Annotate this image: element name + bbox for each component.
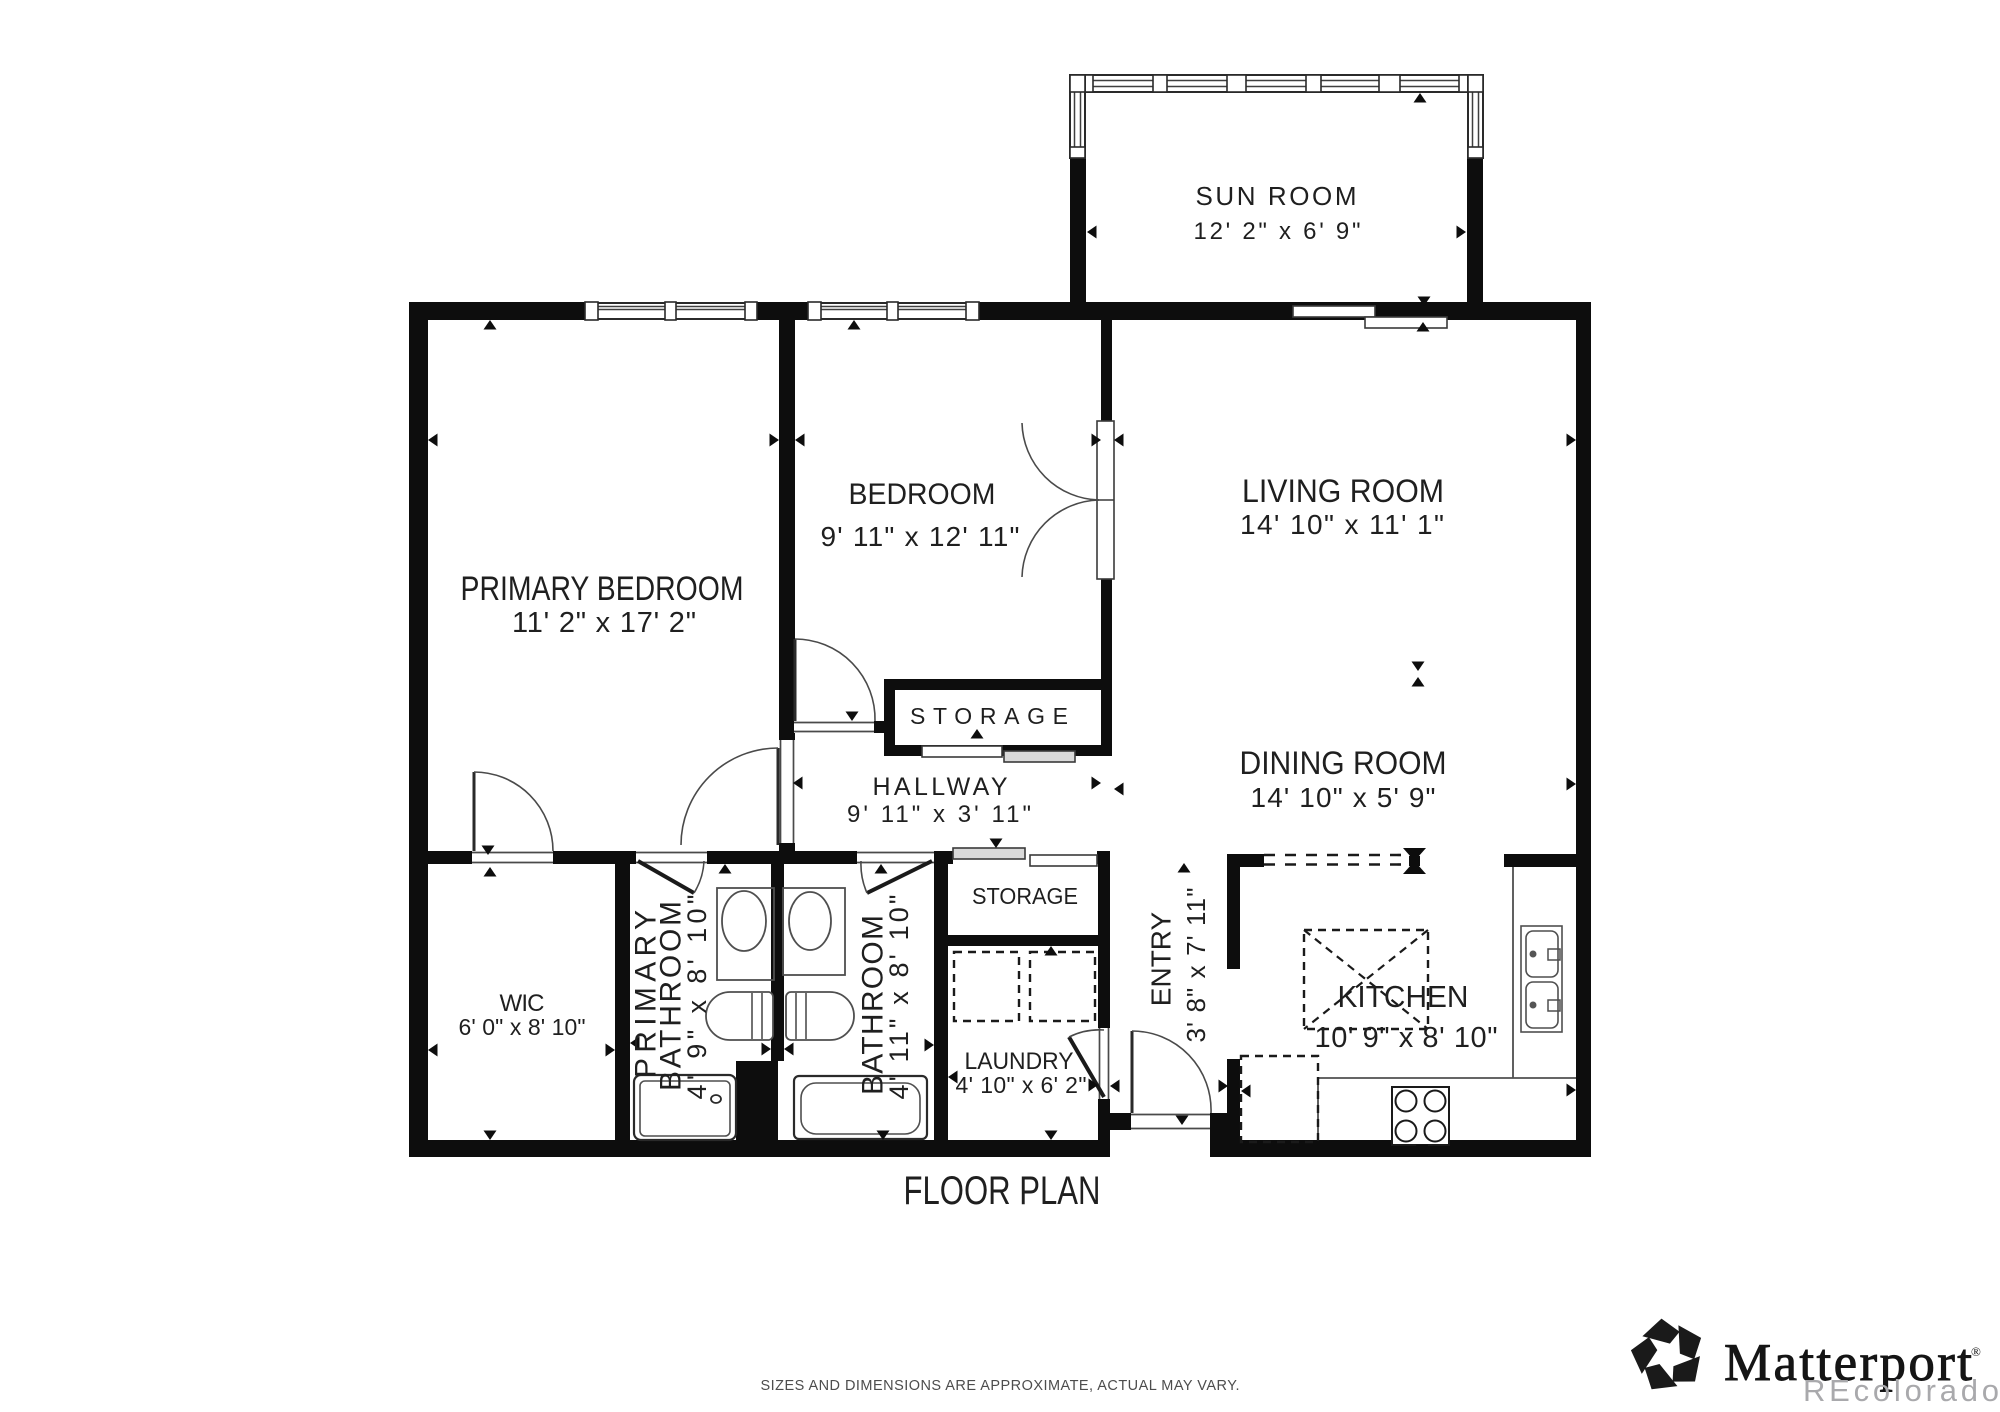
svg-text:3' 8" x 7' 11": 3' 8" x 7' 11" xyxy=(1181,888,1211,1043)
svg-text:14' 10" x 11' 1": 14' 10" x 11' 1" xyxy=(1240,509,1444,540)
svg-text:4' 10" x 6' 2": 4' 10" x 6' 2" xyxy=(956,1072,1087,1098)
svg-text:FLOOR PLAN: FLOOR PLAN xyxy=(904,1169,1101,1213)
svg-text:SIZES AND DIMENSIONS ARE APPRO: SIZES AND DIMENSIONS ARE APPROXIMATE, AC… xyxy=(761,1378,1240,1394)
svg-text:11' 2" x 17' 2": 11' 2" x 17' 2" xyxy=(512,607,696,639)
svg-text:LAUNDRY: LAUNDRY xyxy=(965,1048,1074,1075)
svg-text:KITCHEN: KITCHEN xyxy=(1338,979,1469,1014)
svg-text:6' 0" x 8' 10": 6' 0" x 8' 10" xyxy=(459,1014,586,1040)
svg-text:LIVING ROOM: LIVING ROOM xyxy=(1242,473,1444,509)
svg-text:10' 9" x 8' 10": 10' 9" x 8' 10" xyxy=(1315,1022,1498,1054)
svg-text:DINING ROOM: DINING ROOM xyxy=(1240,745,1447,781)
svg-text:®: ® xyxy=(1971,1344,1981,1359)
svg-text:PRIMARY BEDROOM: PRIMARY BEDROOM xyxy=(461,570,744,608)
svg-text:STORAGE: STORAGE xyxy=(972,883,1078,909)
svg-text:9' 11" x 12' 11": 9' 11" x 12' 11" xyxy=(821,521,1020,552)
svg-text:BEDROOM: BEDROOM xyxy=(849,478,996,511)
svg-text:STORAGE: STORAGE xyxy=(910,703,1068,729)
svg-text:WIC: WIC xyxy=(500,990,545,1017)
svg-text:ENTRY: ENTRY xyxy=(1146,911,1177,1006)
